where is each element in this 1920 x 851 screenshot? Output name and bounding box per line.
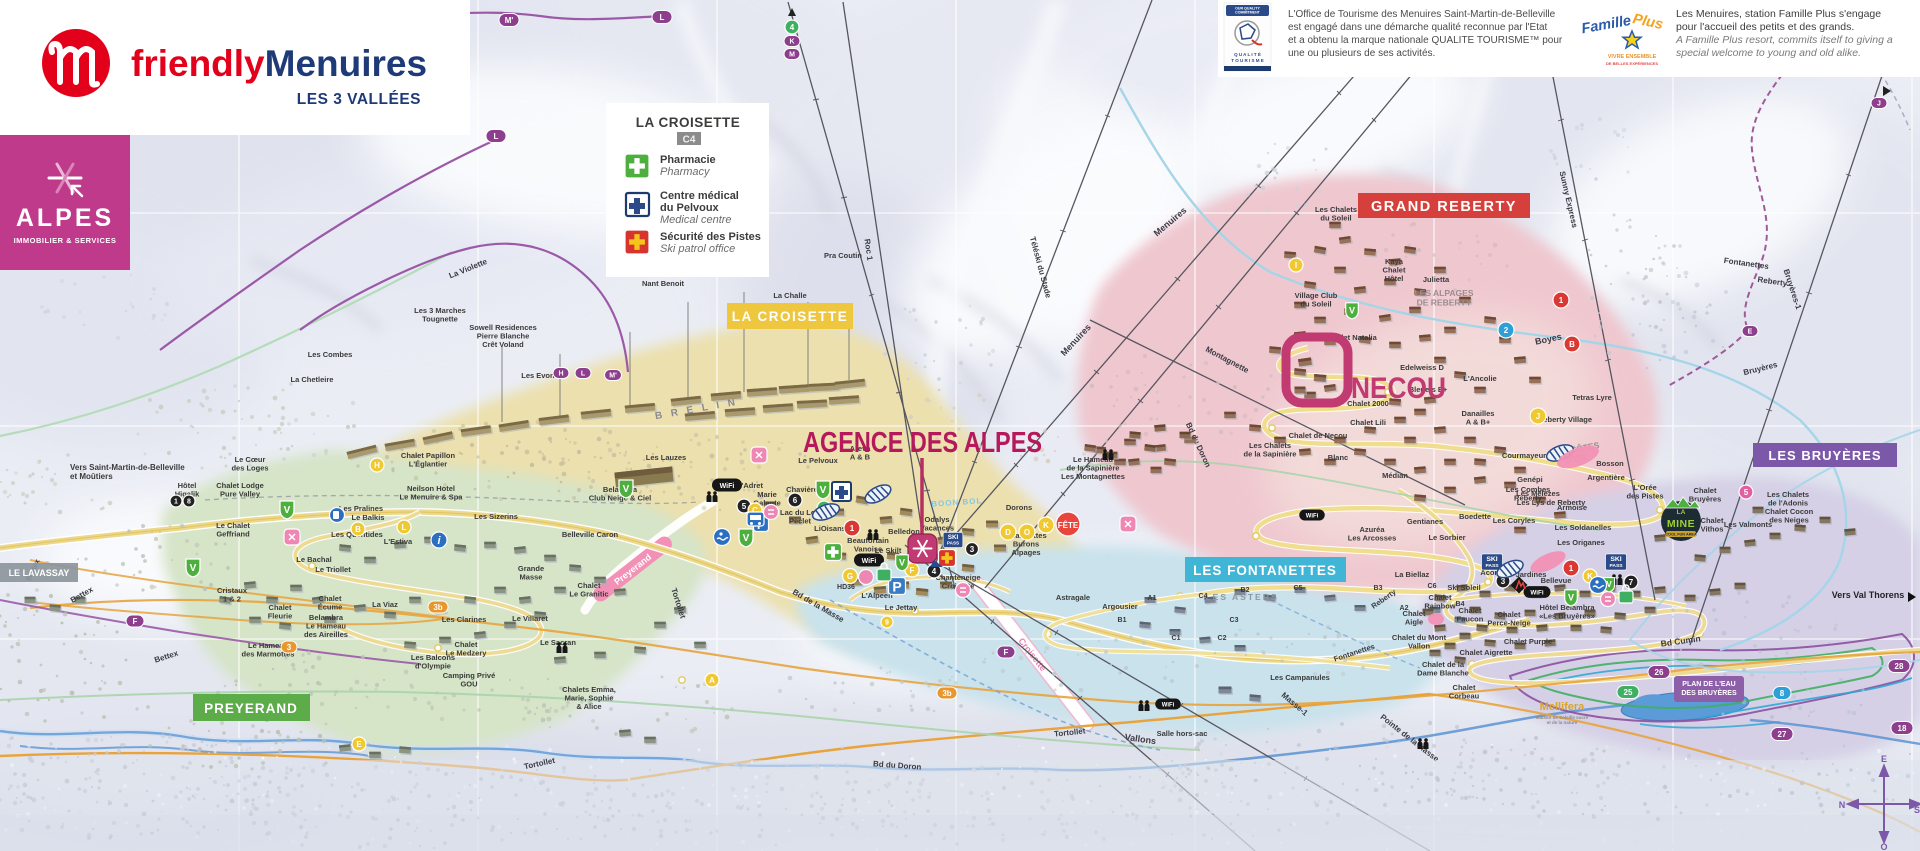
svg-text:3b: 3b bbox=[942, 689, 951, 698]
svg-text:VIVRE ENSEMBLE: VIVRE ENSEMBLE bbox=[1608, 54, 1657, 60]
svg-text:WiFi: WiFi bbox=[1162, 702, 1175, 708]
svg-text:Centre médical: Centre médical bbox=[660, 190, 739, 202]
svg-text:et a obtenu la marque national: et a obtenu la marque nationale QUALITE … bbox=[1288, 35, 1563, 46]
svg-text:D: D bbox=[1005, 528, 1011, 537]
svg-text:PASS: PASS bbox=[947, 541, 959, 546]
svg-text:et Moûtiers: et Moûtiers bbox=[70, 472, 113, 481]
svg-text:Vithos: Vithos bbox=[1701, 525, 1724, 534]
svg-text:C2: C2 bbox=[1218, 635, 1227, 642]
svg-text:Les Valmonts: Les Valmonts bbox=[1724, 520, 1772, 529]
svg-text:friendlyMenuires: friendlyMenuires bbox=[131, 43, 427, 84]
svg-text:Le Bachal: Le Bachal bbox=[296, 555, 331, 564]
svg-text:E: E bbox=[1881, 754, 1887, 764]
svg-text:5: 5 bbox=[1744, 488, 1749, 497]
svg-text:Gentianes: Gentianes bbox=[1407, 517, 1443, 526]
svg-text:A1: A1 bbox=[1148, 595, 1157, 602]
svg-text:1: 1 bbox=[1569, 564, 1574, 573]
svg-text:C5: C5 bbox=[1294, 585, 1303, 592]
svg-text:H: H bbox=[374, 461, 380, 470]
svg-text:V: V bbox=[1349, 306, 1355, 316]
svg-text:Argousier: Argousier bbox=[1102, 602, 1138, 611]
svg-text:M': M' bbox=[505, 16, 514, 25]
svg-text:La Chetleire: La Chetleire bbox=[291, 375, 334, 384]
svg-text:L: L bbox=[660, 13, 665, 22]
svg-text:E: E bbox=[1748, 328, 1753, 335]
svg-text:F: F bbox=[1004, 648, 1009, 657]
svg-text:B3: B3 bbox=[1374, 585, 1383, 592]
svg-text:Chavière: Chavière bbox=[786, 485, 818, 494]
svg-text:du Soleil: du Soleil bbox=[1320, 214, 1351, 223]
svg-text:A & B+: A & B+ bbox=[1466, 418, 1491, 427]
svg-text:SKI: SKI bbox=[1610, 556, 1621, 563]
svg-text:K: K bbox=[1043, 521, 1049, 530]
svg-text:E: E bbox=[356, 740, 362, 749]
svg-text:F: F bbox=[133, 617, 138, 626]
svg-text:Sécurité des Pistes: Sécurité des Pistes bbox=[660, 231, 761, 243]
svg-text:La Biellaz: La Biellaz bbox=[1395, 570, 1430, 579]
svg-text:C1: C1 bbox=[1172, 635, 1181, 642]
svg-text:A Famille Plus resort, commits: A Famille Plus resort, commits itself to… bbox=[1675, 34, 1893, 46]
svg-text:1: 1 bbox=[174, 498, 178, 505]
svg-text:27: 27 bbox=[1778, 730, 1787, 739]
svg-text:7: 7 bbox=[1629, 578, 1634, 587]
svg-text:Julietta: Julietta bbox=[1423, 275, 1450, 284]
svg-text:A: A bbox=[709, 676, 715, 685]
svg-text:3: 3 bbox=[287, 643, 292, 652]
svg-text:et de la nature: et de la nature bbox=[1547, 720, 1578, 725]
svg-text:Edelweiss D: Edelweiss D bbox=[1400, 363, 1444, 372]
svg-text:COOL FUN AREA: COOL FUN AREA bbox=[1665, 533, 1697, 537]
svg-text:Le Triollet: Le Triollet bbox=[315, 565, 351, 574]
svg-text:des Aireilles: des Aireilles bbox=[304, 630, 348, 639]
svg-text:GRAND REBERTY: GRAND REBERTY bbox=[1371, 199, 1517, 215]
svg-text:T O U R I S M E: T O U R I S M E bbox=[1231, 58, 1264, 63]
svg-text:Masse: Masse bbox=[520, 573, 543, 582]
svg-text:est engagé dans une démarche q: est engagé dans une démarche qualité rec… bbox=[1288, 22, 1548, 33]
svg-text:L: L bbox=[402, 523, 407, 532]
svg-text:pour l'accueil des petits et d: pour l'accueil des petits et des grands. bbox=[1676, 21, 1854, 33]
svg-text:special welcome to young and o: special welcome to young and old alike. bbox=[1676, 47, 1861, 59]
svg-text:Astragale: Astragale bbox=[1056, 593, 1090, 602]
svg-text:L: L bbox=[494, 132, 499, 141]
svg-text:Pharmacy: Pharmacy bbox=[660, 166, 711, 178]
svg-text:V: V bbox=[1568, 593, 1574, 603]
svg-text:Les Pralines: Les Pralines bbox=[339, 504, 383, 513]
svg-text:LA CROISETTE: LA CROISETTE bbox=[636, 115, 741, 130]
svg-text:DE BELLES EXPÉRIENCES: DE BELLES EXPÉRIENCES bbox=[1606, 61, 1658, 66]
svg-text:N: N bbox=[1839, 800, 1846, 810]
svg-text:26: 26 bbox=[1655, 668, 1664, 677]
svg-text:Rainbow: Rainbow bbox=[1424, 602, 1455, 611]
svg-text:L'Office de Tourisme des Menui: L'Office de Tourisme des Menuires Saint-… bbox=[1288, 9, 1556, 20]
svg-text:Les Campanules: Les Campanules bbox=[1270, 673, 1330, 682]
svg-text:Tougnette: Tougnette bbox=[422, 315, 458, 324]
svg-text:LiOisans: LiOisans bbox=[814, 524, 846, 533]
svg-text:B1: B1 bbox=[1118, 617, 1127, 624]
svg-text:Geffriand: Geffriand bbox=[216, 530, 250, 539]
svg-text:WiFi: WiFi bbox=[1530, 590, 1543, 597]
svg-text:L'Estiva: L'Estiva bbox=[384, 537, 413, 546]
svg-text:Nant Benoit: Nant Benoit bbox=[642, 279, 685, 288]
svg-text:AGENCE DES ALPES: AGENCE DES ALPES bbox=[803, 427, 1042, 459]
svg-text:L: L bbox=[581, 370, 586, 377]
svg-text:6: 6 bbox=[793, 496, 798, 505]
svg-text:S: S bbox=[1914, 805, 1920, 815]
svg-text:V: V bbox=[190, 563, 197, 574]
svg-text:H: H bbox=[558, 370, 563, 377]
svg-text:IMMOBILIER & SERVICES: IMMOBILIER & SERVICES bbox=[14, 236, 117, 245]
svg-text:2: 2 bbox=[1504, 326, 1509, 335]
svg-text:M': M' bbox=[609, 372, 617, 379]
svg-text:V: V bbox=[1606, 580, 1612, 589]
svg-text:COMMITMENT: COMMITMENT bbox=[1235, 11, 1261, 15]
svg-text:1: 1 bbox=[850, 524, 855, 533]
svg-text:LA CROISETTE: LA CROISETTE bbox=[732, 309, 849, 324]
svg-text:Chalet Purple: Chalet Purple bbox=[1504, 637, 1552, 646]
svg-text:Les Combes: Les Combes bbox=[308, 350, 353, 359]
svg-text:Bellevue: Bellevue bbox=[1541, 576, 1572, 585]
svg-text:WiFi: WiFi bbox=[1306, 513, 1319, 519]
svg-text:Aigle: Aigle bbox=[1405, 618, 1423, 627]
svg-text:V: V bbox=[623, 484, 630, 495]
svg-text:d'Olympie: d'Olympie bbox=[415, 662, 451, 671]
svg-text:Les Arcosses: Les Arcosses bbox=[1348, 534, 1397, 543]
svg-text:Tetras Lyre: Tetras Lyre bbox=[1572, 393, 1612, 402]
svg-text:Le Granitic: Le Granitic bbox=[569, 590, 608, 599]
svg-text:P: P bbox=[892, 578, 901, 594]
svg-text:18: 18 bbox=[1898, 724, 1907, 733]
svg-text:V: V bbox=[899, 558, 905, 568]
svg-text:PREYERAND: PREYERAND bbox=[204, 701, 298, 716]
svg-text:Ski Soleil: Ski Soleil bbox=[1447, 583, 1480, 592]
svg-text:Médian: Médian bbox=[1382, 471, 1408, 480]
svg-text:Le Balkis: Le Balkis bbox=[352, 513, 385, 522]
svg-text:O: O bbox=[1880, 842, 1887, 851]
svg-text:4: 4 bbox=[932, 567, 937, 576]
svg-text:Belleville Caron: Belleville Caron bbox=[562, 530, 619, 539]
svg-text:La Viaz: La Viaz bbox=[372, 600, 398, 609]
svg-text:1: 1 bbox=[1559, 296, 1564, 305]
svg-text:des Pistes: des Pistes bbox=[1626, 492, 1663, 501]
svg-text:V: V bbox=[743, 533, 750, 544]
svg-text:Les Sizerins: Les Sizerins bbox=[474, 512, 518, 521]
svg-text:Q U A L I T É: Q U A L I T É bbox=[1234, 50, 1261, 57]
svg-text:Fleurie: Fleurie bbox=[268, 612, 293, 621]
svg-text:B: B bbox=[1569, 340, 1575, 349]
svg-text:Dame Blanche: Dame Blanche bbox=[1417, 669, 1469, 678]
svg-text:Le Sorbier: Le Sorbier bbox=[1428, 533, 1465, 542]
svg-text:8: 8 bbox=[1780, 689, 1785, 698]
svg-text:MINE: MINE bbox=[1667, 518, 1695, 530]
svg-text:NECOU: NECOU bbox=[1351, 372, 1446, 405]
svg-text:WiFi: WiFi bbox=[862, 558, 877, 565]
svg-text:de la Sapinière: de la Sapinière bbox=[1244, 450, 1297, 459]
svg-text:ALPES: ALPES bbox=[16, 204, 114, 232]
svg-text:Corbeau: Corbeau bbox=[1449, 692, 1480, 701]
svg-text:& Alice: & Alice bbox=[576, 702, 601, 711]
svg-text:PASS: PASS bbox=[1609, 563, 1623, 569]
svg-text:Les Montagnettes: Les Montagnettes bbox=[1061, 472, 1125, 481]
svg-text:Écume: Écume bbox=[318, 603, 343, 612]
svg-text:Faucon: Faucon bbox=[1457, 615, 1484, 624]
svg-text:DES BRUYÈRES: DES BRUYÈRES bbox=[1681, 688, 1737, 697]
svg-text:Vallon: Vallon bbox=[1408, 642, 1431, 651]
svg-text:I: I bbox=[1295, 261, 1297, 270]
svg-text:O: O bbox=[1024, 528, 1030, 537]
svg-text:Pharmacie: Pharmacie bbox=[660, 154, 716, 166]
svg-text:Salle hors-sac: Salle hors-sac bbox=[1157, 729, 1208, 738]
svg-text:LES 3 VALLÉES: LES 3 VALLÉES bbox=[297, 91, 421, 108]
svg-text:Hôtel: Hôtel bbox=[1385, 274, 1404, 283]
svg-text:Ski patrol office: Ski patrol office bbox=[660, 243, 735, 255]
svg-text:Les Mélèzes: Les Mélèzes bbox=[1516, 489, 1560, 498]
svg-text:C3: C3 bbox=[1230, 617, 1239, 624]
svg-text:LA: LA bbox=[1677, 509, 1686, 516]
svg-text:Blanc: Blanc bbox=[1328, 453, 1348, 462]
svg-text:Dorons: Dorons bbox=[1006, 503, 1032, 512]
svg-text:Pure Valley: Pure Valley bbox=[220, 490, 261, 499]
svg-text:Perce-Neige: Perce-Neige bbox=[1487, 619, 1530, 628]
svg-text:Le Jettay: Le Jettay bbox=[885, 603, 918, 612]
svg-text:Pra Coutin: Pra Coutin bbox=[824, 251, 862, 260]
svg-text:Les Coryles: Les Coryles bbox=[1493, 516, 1536, 525]
svg-text:du Soleil: du Soleil bbox=[1300, 300, 1331, 309]
svg-text:3b: 3b bbox=[433, 603, 442, 612]
svg-text:G: G bbox=[847, 572, 853, 581]
svg-text:«Les Bruyères»: «Les Bruyères» bbox=[1539, 612, 1595, 621]
svg-text:Chalet Aigrette: Chalet Aigrette bbox=[1459, 648, 1512, 657]
svg-text:Vacances: Vacances bbox=[920, 524, 954, 533]
svg-text:V: V bbox=[284, 505, 291, 516]
svg-text:Vers Val Thorens: Vers Val Thorens bbox=[1832, 590, 1905, 600]
svg-text:Les Lauzes: Les Lauzes bbox=[646, 453, 686, 462]
svg-text:Medical centre: Medical centre bbox=[660, 214, 732, 226]
svg-text:Les Origanes: Les Origanes bbox=[1557, 538, 1605, 547]
svg-text:Courmayeur: Courmayeur bbox=[1502, 451, 1546, 460]
svg-text:8: 8 bbox=[187, 498, 191, 505]
svg-text:DE REBERTY: DE REBERTY bbox=[1417, 298, 1472, 308]
svg-text:Les Menuires, station Famille: Les Menuires, station Famille Plus s'eng… bbox=[1676, 8, 1881, 20]
svg-text:Mellifera: Mellifera bbox=[1540, 701, 1586, 713]
svg-text:28: 28 bbox=[1895, 662, 1904, 671]
svg-text:C4: C4 bbox=[1199, 593, 1208, 600]
svg-text:PLAN DE L'EAU: PLAN DE L'EAU bbox=[1682, 681, 1735, 688]
svg-text:SKI: SKI bbox=[948, 534, 959, 541]
svg-text:Bosson: Bosson bbox=[1596, 459, 1624, 468]
svg-text:des Neiges: des Neiges bbox=[1769, 516, 1809, 525]
svg-text:1 & 2: 1 & 2 bbox=[223, 595, 241, 604]
svg-text:Les Soldanelles: Les Soldanelles bbox=[1555, 523, 1612, 532]
svg-text:LE LAVASSAY: LE LAVASSAY bbox=[9, 568, 70, 578]
svg-text:HD36: HD36 bbox=[837, 584, 855, 591]
svg-text:Les Clarines: Les Clarines bbox=[442, 615, 487, 624]
svg-text:LES BRUYÈRES: LES BRUYÈRES bbox=[1768, 448, 1881, 463]
svg-text:V: V bbox=[820, 485, 827, 496]
svg-text:B: B bbox=[355, 525, 361, 534]
svg-text:K: K bbox=[789, 38, 794, 45]
svg-text:des Loges: des Loges bbox=[231, 464, 268, 473]
svg-text:9: 9 bbox=[885, 619, 889, 626]
svg-text:Chalet de Necou: Chalet de Necou bbox=[1289, 431, 1348, 440]
svg-text:Genépi: Genépi bbox=[1517, 475, 1542, 484]
svg-text:Peclet: Peclet bbox=[789, 517, 812, 526]
svg-text:4: 4 bbox=[790, 23, 795, 32]
svg-text:Le Villaret: Le Villaret bbox=[512, 614, 548, 623]
svg-text:Les Lys de Reberty: Les Lys de Reberty bbox=[1517, 498, 1586, 507]
svg-text:LES FONTANETTES: LES FONTANETTES bbox=[1193, 563, 1337, 578]
svg-text:J: J bbox=[1877, 100, 1881, 107]
svg-text:Boedette: Boedette bbox=[1459, 512, 1491, 521]
svg-text:C6: C6 bbox=[1428, 583, 1437, 590]
svg-text:Le Medzery: Le Medzery bbox=[446, 649, 488, 658]
svg-text:5: 5 bbox=[742, 502, 747, 511]
svg-text:FÊTE: FÊTE bbox=[1058, 521, 1079, 530]
svg-text:Crêt Voland: Crêt Voland bbox=[482, 340, 524, 349]
svg-text:du Pelvoux: du Pelvoux bbox=[660, 202, 720, 214]
svg-text:Chalet Lili: Chalet Lili bbox=[1350, 418, 1386, 427]
svg-text:une ou plusieurs de ses activi: une ou plusieurs de ses activités. bbox=[1288, 48, 1435, 59]
svg-text:PASS: PASS bbox=[1485, 563, 1499, 569]
svg-text:25: 25 bbox=[1624, 688, 1633, 697]
svg-text:L'Églantier: L'Églantier bbox=[409, 460, 448, 469]
svg-text:J: J bbox=[1536, 412, 1540, 421]
svg-text:Vers Saint-Martin-de-Bellevill: Vers Saint-Martin-de-Belleville bbox=[70, 463, 185, 472]
svg-text:Le Menuire & Spa: Le Menuire & Spa bbox=[400, 493, 464, 502]
svg-text:3: 3 bbox=[970, 545, 975, 554]
svg-text:La Challe: La Challe bbox=[773, 291, 806, 300]
svg-text:SKI: SKI bbox=[1486, 556, 1497, 563]
svg-text:B2: B2 bbox=[1241, 587, 1250, 594]
svg-text:WiFi: WiFi bbox=[720, 483, 735, 490]
svg-text:L'Ancolie: L'Ancolie bbox=[1463, 374, 1496, 383]
svg-text:LES ALPAGES: LES ALPAGES bbox=[1414, 288, 1473, 298]
svg-text:C4: C4 bbox=[683, 135, 696, 146]
svg-text:Alpages: Alpages bbox=[1011, 548, 1040, 557]
svg-text:M: M bbox=[789, 51, 795, 58]
svg-text:Argentière: Argentière bbox=[1587, 473, 1625, 482]
svg-text:F: F bbox=[910, 566, 915, 575]
svg-text:GOU: GOU bbox=[460, 680, 477, 689]
